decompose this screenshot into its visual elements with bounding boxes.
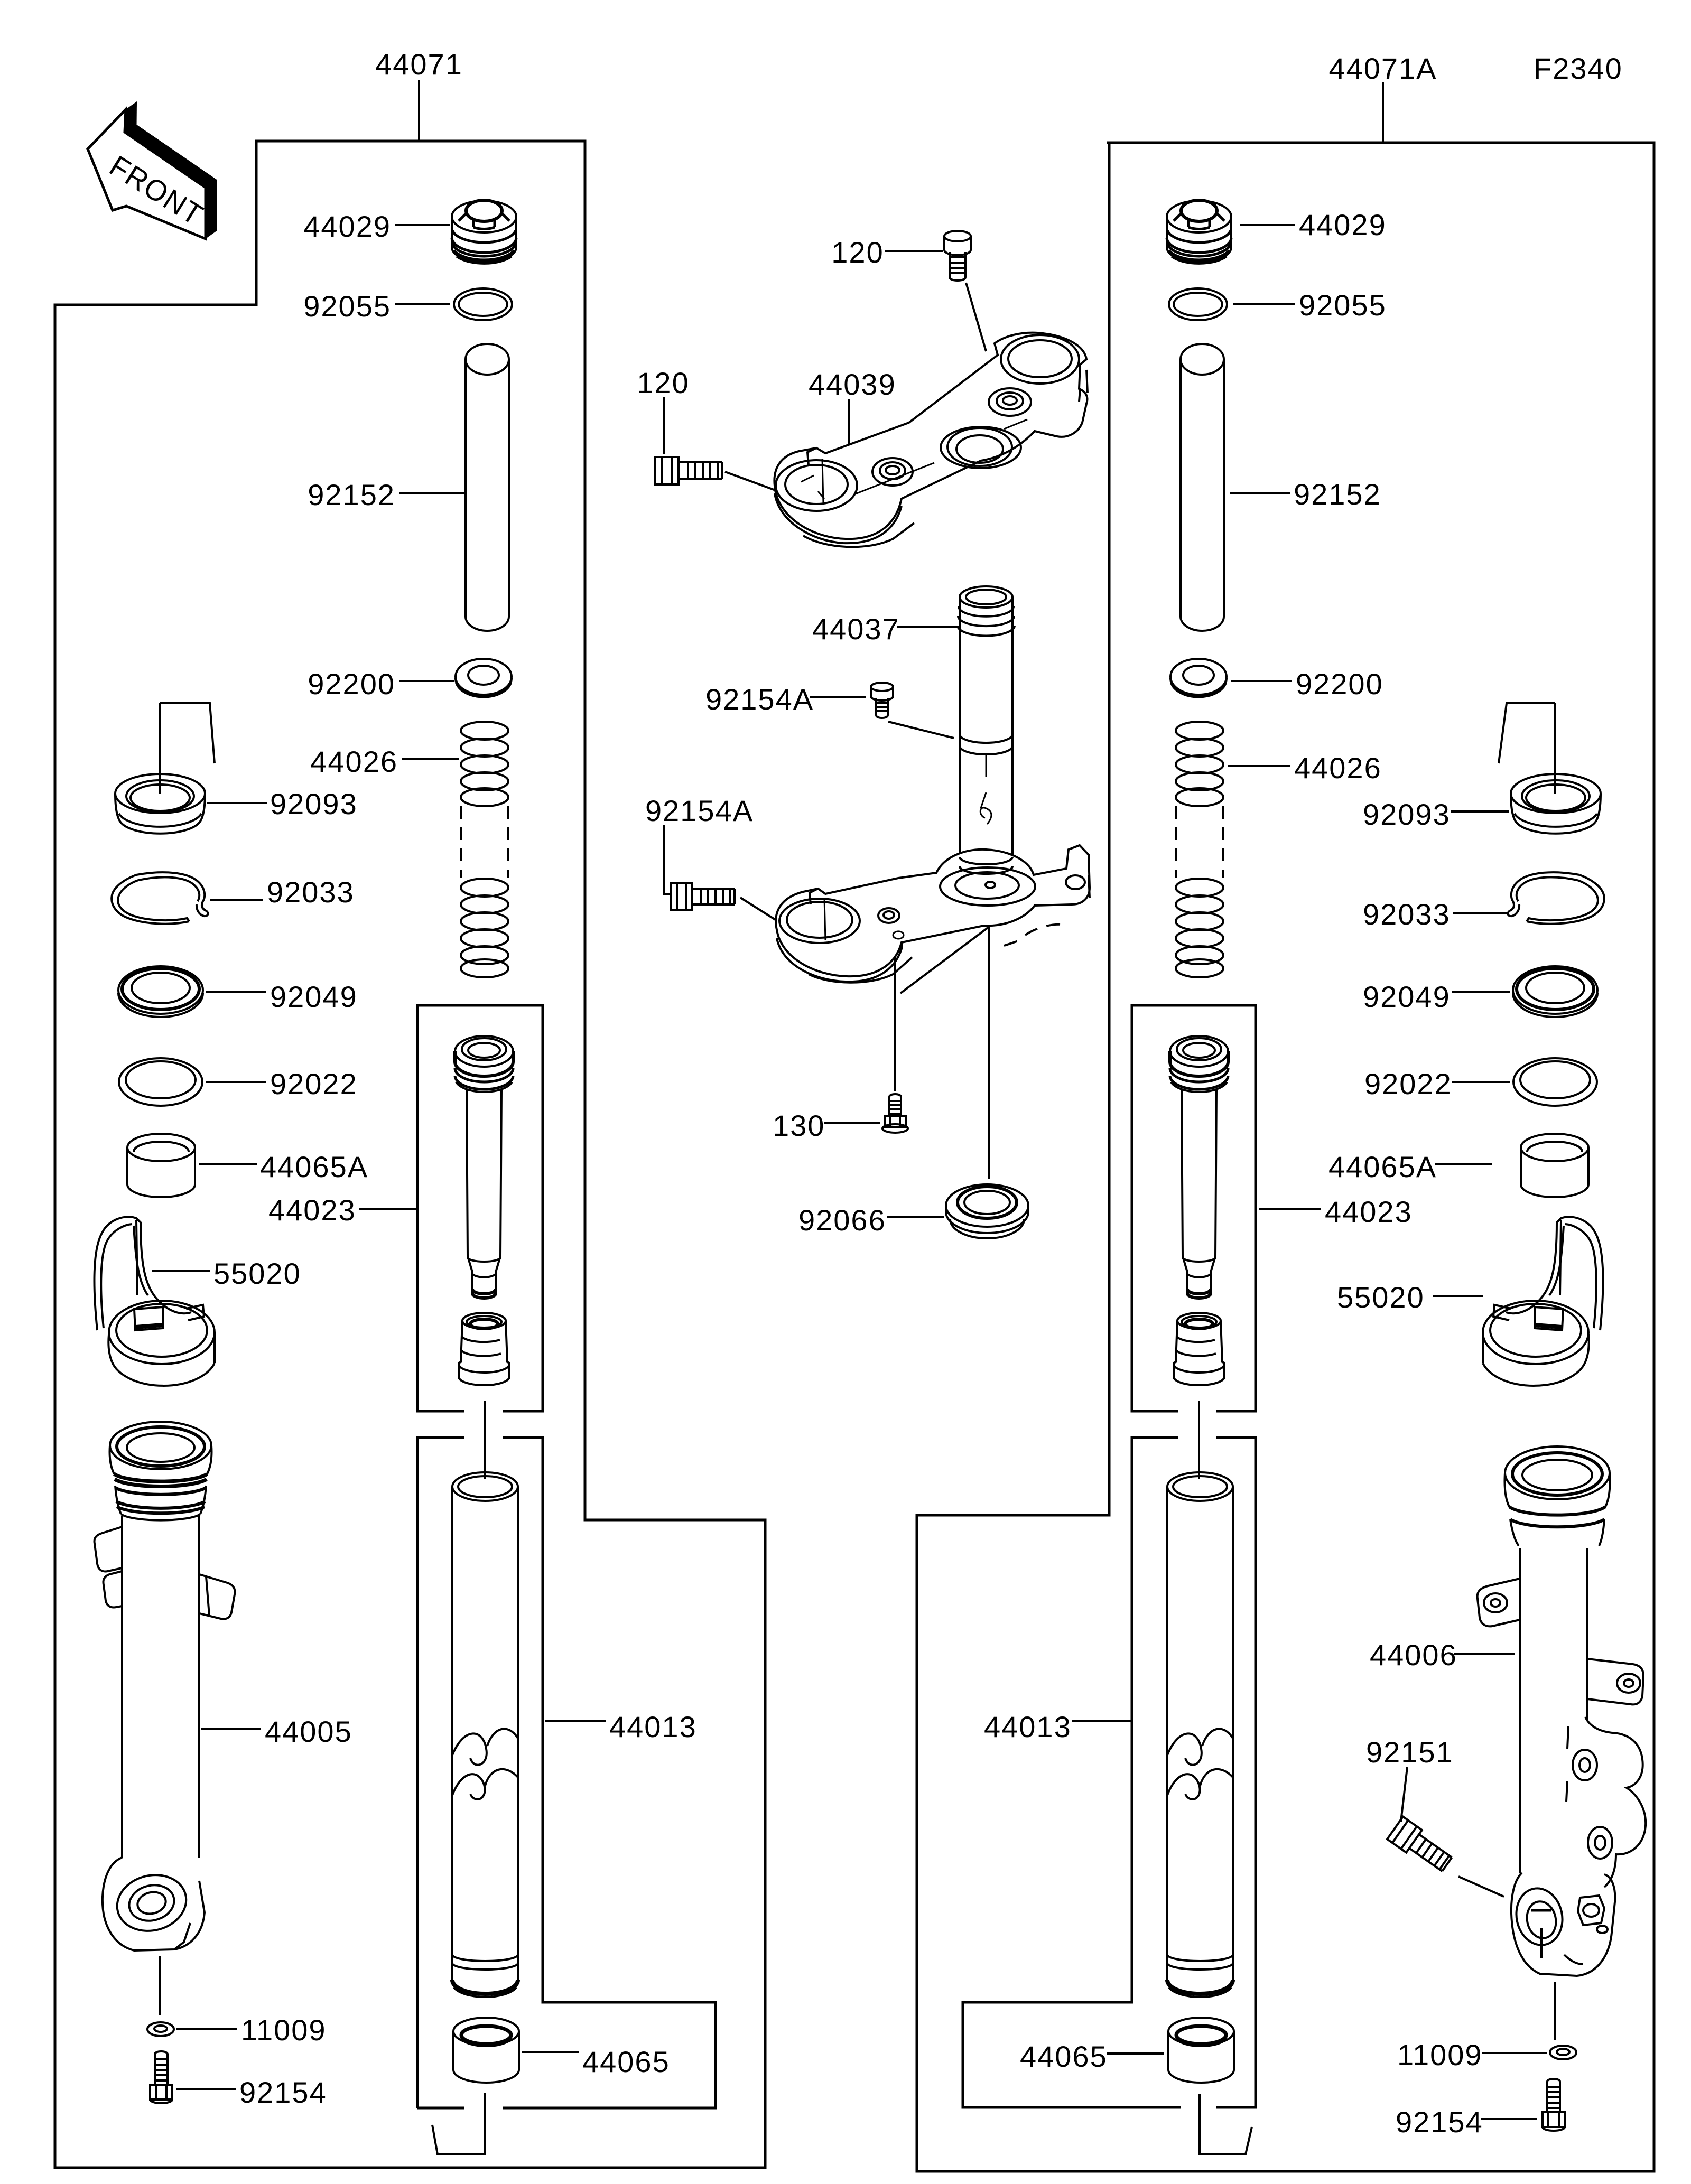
svg-text:92152: 92152 bbox=[308, 478, 395, 511]
svg-text:44026: 44026 bbox=[1294, 751, 1382, 785]
svg-text:44013: 44013 bbox=[984, 1710, 1072, 1743]
svg-text:44071: 44071 bbox=[375, 48, 463, 81]
svg-text:92151: 92151 bbox=[1366, 1735, 1454, 1769]
svg-text:11009: 11009 bbox=[1397, 2038, 1483, 2071]
svg-text:92066: 92066 bbox=[798, 1203, 886, 1237]
svg-text:44013: 44013 bbox=[609, 1710, 697, 1743]
svg-text:44029: 44029 bbox=[303, 210, 391, 243]
svg-text:92055: 92055 bbox=[1299, 288, 1387, 322]
svg-text:44006: 44006 bbox=[1370, 1638, 1457, 1672]
svg-text:44026: 44026 bbox=[310, 745, 398, 778]
svg-text:130: 130 bbox=[773, 1109, 825, 1142]
svg-text:92022: 92022 bbox=[270, 1067, 358, 1100]
svg-text:44005: 44005 bbox=[265, 1715, 352, 1748]
svg-text:F2340: F2340 bbox=[1534, 52, 1623, 85]
svg-text:55020: 55020 bbox=[213, 1257, 301, 1290]
svg-text:92152: 92152 bbox=[1294, 478, 1381, 511]
svg-text:44023: 44023 bbox=[268, 1193, 356, 1227]
svg-text:92093: 92093 bbox=[1363, 798, 1451, 831]
svg-text:44037: 44037 bbox=[812, 612, 900, 646]
svg-text:55020: 55020 bbox=[1337, 1281, 1425, 1314]
svg-text:92093: 92093 bbox=[270, 787, 358, 820]
svg-text:92033: 92033 bbox=[1363, 898, 1451, 931]
svg-text:92049: 92049 bbox=[270, 980, 358, 1013]
svg-text:92154: 92154 bbox=[1396, 2105, 1483, 2139]
svg-text:120: 120 bbox=[637, 366, 689, 399]
svg-text:44071A: 44071A bbox=[1328, 52, 1437, 85]
svg-text:44065: 44065 bbox=[1020, 2040, 1108, 2073]
svg-text:120: 120 bbox=[831, 236, 884, 269]
svg-text:44029: 44029 bbox=[1299, 208, 1387, 241]
svg-text:92154: 92154 bbox=[239, 2076, 327, 2109]
svg-text:92055: 92055 bbox=[303, 290, 391, 323]
svg-text:44065A: 44065A bbox=[260, 1150, 368, 1183]
svg-text:92200: 92200 bbox=[1296, 667, 1383, 701]
svg-text:44065A: 44065A bbox=[1328, 1150, 1437, 1183]
svg-text:11009: 11009 bbox=[241, 2013, 327, 2047]
svg-text:92049: 92049 bbox=[1363, 980, 1451, 1013]
svg-text:92154A: 92154A bbox=[645, 794, 754, 827]
svg-text:92033: 92033 bbox=[267, 875, 355, 909]
svg-text:44039: 44039 bbox=[809, 368, 896, 401]
svg-text:44023: 44023 bbox=[1325, 1195, 1413, 1228]
svg-text:44065: 44065 bbox=[582, 2045, 670, 2078]
svg-text:92200: 92200 bbox=[308, 667, 395, 701]
svg-text:92022: 92022 bbox=[1364, 1067, 1452, 1100]
svg-text:92154A: 92154A bbox=[705, 683, 814, 716]
